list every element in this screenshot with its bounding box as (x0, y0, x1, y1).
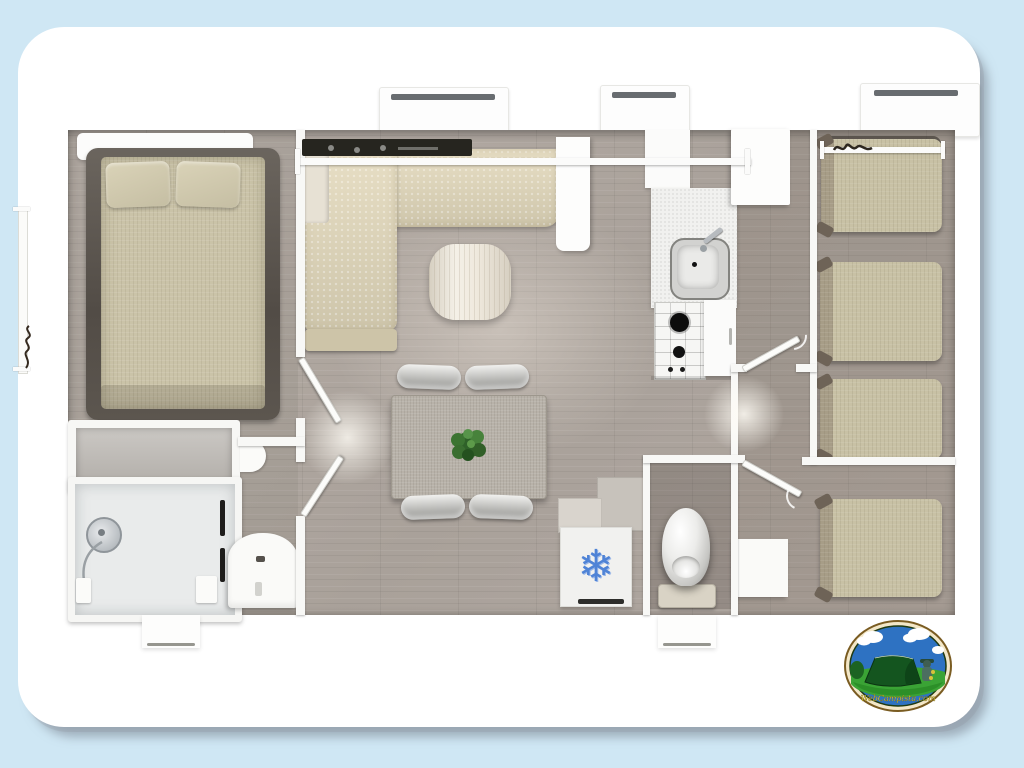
window-tick (820, 141, 824, 159)
rail-item (354, 147, 360, 153)
wall (643, 455, 745, 463)
entrance-step-edge (663, 643, 711, 646)
toilet-base (658, 584, 716, 608)
fridge-freezer: ❄ (560, 527, 632, 607)
dining-chair (401, 494, 466, 520)
shower-door-seal (220, 500, 225, 536)
plant-icon (443, 422, 493, 468)
sink-drain (692, 262, 697, 267)
window-tick (13, 207, 30, 211)
logo-graphic: WebCampista.com (843, 620, 953, 713)
wall (643, 455, 650, 615)
cabinet-handle (729, 328, 732, 345)
toilet-seat-opening (672, 556, 700, 578)
pillow (175, 161, 241, 208)
single-bed (820, 262, 942, 361)
coffee-table (429, 244, 511, 320)
washbasin-accessory (255, 582, 262, 596)
site-logo: WebCampista.com (843, 620, 953, 713)
wall (810, 130, 817, 464)
rail-item (380, 145, 386, 151)
window-tick (295, 149, 300, 174)
dimension-squiggle (20, 324, 38, 370)
bed-foot-shadow (101, 385, 265, 409)
shower-fitting (196, 576, 217, 603)
tall-cabinet (731, 129, 790, 205)
hob-knob (668, 367, 673, 372)
curtain-rail (302, 139, 472, 156)
pillow (105, 161, 171, 208)
sink-basin (677, 245, 719, 289)
washbasin (228, 533, 298, 608)
burner-small (673, 346, 685, 358)
shower-head-center (98, 529, 105, 536)
shower-fitting (76, 578, 91, 603)
snowflake-icon: ❄ (578, 545, 615, 589)
hob-knob (680, 367, 685, 372)
wall (796, 364, 817, 372)
fridge-handle (578, 599, 624, 604)
shower-door-seal (220, 548, 225, 582)
entrance-step-edge (147, 643, 195, 646)
wall (731, 368, 738, 615)
faucet-base (700, 245, 707, 252)
counter-edge-shadow (651, 376, 737, 380)
window-tick (745, 149, 750, 174)
wall (238, 437, 305, 446)
rail-item (328, 145, 334, 151)
window-sash-line (874, 90, 958, 96)
window-sash-line (612, 92, 676, 98)
single-bed (820, 499, 942, 597)
washbasin-faucet (256, 556, 265, 562)
sofa-footrest (305, 329, 397, 351)
partition-column (556, 137, 590, 251)
rail-item (398, 147, 438, 150)
window-tick (941, 141, 945, 159)
dimension-squiggle (832, 138, 874, 158)
burner-large (670, 313, 689, 332)
bedside-cabinet (734, 539, 788, 597)
dining-chair (397, 364, 462, 390)
window-rail (299, 158, 751, 165)
single-bed (820, 379, 942, 459)
floorplan-screenshot: ❄ (0, 0, 1024, 768)
dining-chair (465, 364, 530, 390)
counter-step (597, 477, 647, 531)
window-sash-line (391, 94, 495, 100)
dining-chair (469, 494, 534, 520)
wall (802, 457, 955, 465)
logo-text: WebCampista.com (860, 694, 936, 703)
wall (296, 516, 305, 615)
